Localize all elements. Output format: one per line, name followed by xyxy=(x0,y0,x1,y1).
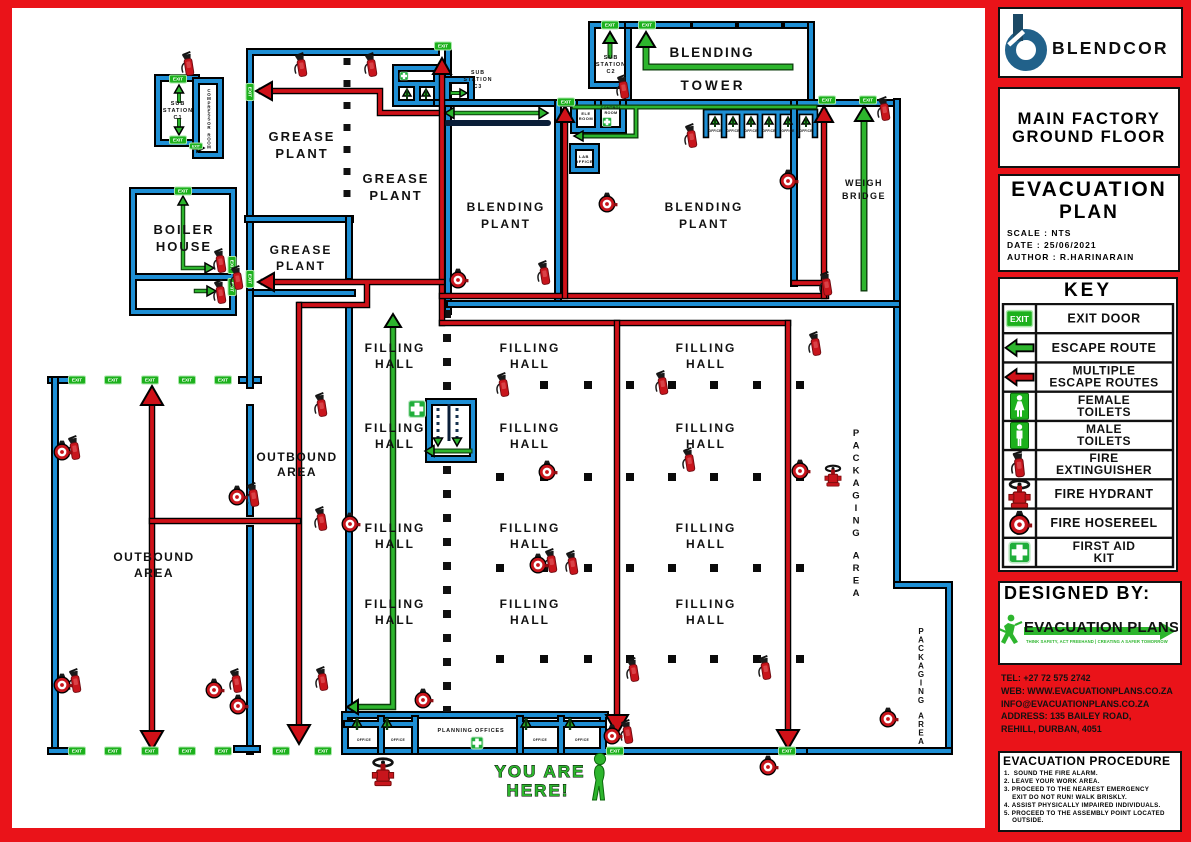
svg-text:EXIT: EXIT xyxy=(108,378,118,383)
svg-text:HALL: HALL xyxy=(686,357,726,371)
svg-text:PLANT: PLANT xyxy=(276,259,326,273)
svg-text:FILLING: FILLING xyxy=(676,597,737,611)
svg-text:EXIT: EXIT xyxy=(182,378,192,383)
svg-text:ROOM: ROOM xyxy=(579,116,594,121)
svg-text:HALL: HALL xyxy=(686,437,726,451)
svg-text:FIRE HOSEREEL: FIRE HOSEREEL xyxy=(1050,516,1157,530)
svg-text:AREA: AREA xyxy=(277,465,317,479)
svg-text:GREASE: GREASE xyxy=(270,243,333,257)
svg-text:CONTROL: CONTROL xyxy=(601,106,622,110)
svg-text:C2: C2 xyxy=(606,69,615,75)
svg-text:EVACUATION PLANS: EVACUATION PLANS xyxy=(1024,619,1178,636)
svg-text:PLANT: PLANT xyxy=(369,188,422,203)
svg-text:HALL: HALL xyxy=(686,613,726,627)
svg-text:BOILER: BOILER xyxy=(153,222,214,237)
svg-text:GREASE: GREASE xyxy=(269,129,336,144)
svg-text:FILLING: FILLING xyxy=(500,521,561,535)
svg-text:GREASE: GREASE xyxy=(363,171,430,186)
svg-text:EXIT DOOR: EXIT DOOR xyxy=(1067,312,1140,326)
svg-text:STATION: STATION xyxy=(464,77,493,83)
svg-text:EXIT: EXIT xyxy=(182,749,192,754)
svg-text:FILLING: FILLING xyxy=(365,341,426,355)
svg-text:BLENDING: BLENDING xyxy=(467,200,546,214)
svg-text:EXIT: EXIT xyxy=(642,23,652,28)
svg-text:PLANT: PLANT xyxy=(481,217,531,231)
svg-text:PLANT: PLANT xyxy=(275,146,328,161)
svg-text:YOU ARE: YOU ARE xyxy=(495,762,586,781)
svg-text:OFFICE: OFFICE xyxy=(357,738,372,742)
svg-text:TOILETS: TOILETS xyxy=(1077,405,1131,419)
svg-text:EXIT: EXIT xyxy=(1010,314,1030,324)
svg-text:EXIT: EXIT xyxy=(782,749,792,754)
svg-text:EXIT: EXIT xyxy=(173,77,183,82)
svg-text:PACKAGINGAREA: PACKAGINGAREA xyxy=(918,627,924,746)
svg-text:OFFICE: OFFICE xyxy=(800,129,813,133)
svg-text:BLENDCOR: BLENDCOR xyxy=(1052,38,1169,58)
svg-text:EXIT: EXIT xyxy=(108,749,118,754)
svg-text:SUB: SUB xyxy=(471,70,485,76)
svg-text:EXIT: EXIT xyxy=(178,189,188,194)
svg-text:HALL: HALL xyxy=(375,437,415,451)
svg-text:FILLING: FILLING xyxy=(500,597,561,611)
svg-text:EXIT: EXIT xyxy=(218,749,228,754)
svg-text:TOWER: TOWER xyxy=(681,78,746,93)
svg-text:HALL: HALL xyxy=(510,613,550,627)
svg-text:HALL: HALL xyxy=(686,537,726,551)
svg-text:EXIT: EXIT xyxy=(561,100,571,105)
svg-text:OFFICE: OFFICE xyxy=(782,129,795,133)
svg-text:WEIGH: WEIGH xyxy=(845,178,883,188)
svg-text:STATION: STATION xyxy=(596,62,626,68)
svg-text:FILLING: FILLING xyxy=(365,521,426,535)
svg-text:HALL: HALL xyxy=(510,437,550,451)
svg-text:EXIT: EXIT xyxy=(438,44,448,49)
svg-text:HALL: HALL xyxy=(510,357,550,371)
svg-text:EXTINGUISHER: EXTINGUISHER xyxy=(1056,463,1152,477)
svg-text:EXIT: EXIT xyxy=(247,274,252,284)
svg-text:THINK SAFETY, ACT FREEHAND | C: THINK SAFETY, ACT FREEHAND | CREATING A … xyxy=(1026,639,1168,644)
svg-text:PACKAGINGAREA: PACKAGINGAREA xyxy=(852,428,860,599)
svg-text:SUB: SUB xyxy=(171,101,186,107)
svg-text:EXIT: EXIT xyxy=(192,144,201,148)
svg-text:HALL: HALL xyxy=(375,357,415,371)
svg-text:EXIT: EXIT xyxy=(863,98,873,103)
svg-text:OFFICE: OFFICE xyxy=(391,738,406,742)
svg-text:FILLING: FILLING xyxy=(365,421,426,435)
svg-text:EXIT: EXIT xyxy=(218,378,228,383)
svg-text:EXIT: EXIT xyxy=(145,378,155,383)
svg-text:HOUSE: HOUSE xyxy=(156,239,212,254)
svg-text:TOILETS: TOILETS xyxy=(1077,434,1131,448)
svg-text:EXIT: EXIT xyxy=(822,98,832,103)
svg-text:BRIDGE: BRIDGE xyxy=(842,191,886,201)
svg-text:EXIT: EXIT xyxy=(173,138,183,143)
svg-text:EXIT: EXIT xyxy=(605,23,615,28)
svg-text:HALL: HALL xyxy=(375,613,415,627)
svg-text:COMPRESSORROOM: COMPRESSORROOM xyxy=(207,88,211,150)
svg-text:AREA: AREA xyxy=(134,566,174,580)
svg-text:C3: C3 xyxy=(474,84,483,90)
svg-text:EXIT: EXIT xyxy=(72,749,82,754)
svg-text:KIT: KIT xyxy=(1094,551,1115,565)
svg-text:HALL: HALL xyxy=(375,537,415,551)
svg-text:OFFICE: OFFICE xyxy=(763,129,776,133)
svg-text:FILLING: FILLING xyxy=(365,597,426,611)
svg-text:OFFICE: OFFICE xyxy=(533,738,548,742)
svg-text:ROOM: ROOM xyxy=(604,111,617,115)
svg-text:OFFICE: OFFICE xyxy=(727,129,740,133)
svg-text:OFFICE: OFFICE xyxy=(575,738,590,742)
svg-text:C1: C1 xyxy=(173,115,182,121)
svg-text:OUTBOUND: OUTBOUND xyxy=(256,450,337,464)
svg-text:OUTBOUND: OUTBOUND xyxy=(113,550,194,564)
svg-text:OFFICE: OFFICE xyxy=(745,129,758,133)
svg-text:ESCAPE ROUTE: ESCAPE ROUTE xyxy=(1052,341,1157,355)
svg-text:PLANT: PLANT xyxy=(679,217,729,231)
svg-text:EXIT: EXIT xyxy=(610,749,620,754)
svg-text:OFFICE: OFFICE xyxy=(709,129,722,133)
svg-text:FILLING: FILLING xyxy=(676,421,737,435)
svg-text:SUB: SUB xyxy=(604,55,619,61)
svg-text:EXIT: EXIT xyxy=(145,749,155,754)
svg-text:ESCAPE ROUTES: ESCAPE ROUTES xyxy=(1049,376,1158,390)
svg-text:PLANNING OFFICES: PLANNING OFFICES xyxy=(438,728,505,734)
svg-text:HALL: HALL xyxy=(510,537,550,551)
svg-text:FILLING: FILLING xyxy=(500,421,561,435)
svg-text:BLENDING: BLENDING xyxy=(670,45,755,60)
svg-text:FILLING: FILLING xyxy=(676,341,737,355)
svg-text:EXIT: EXIT xyxy=(72,378,82,383)
svg-text:FIRE HYDRANT: FIRE HYDRANT xyxy=(1054,487,1153,501)
svg-text:EXIT: EXIT xyxy=(229,282,234,292)
svg-text:FILLING: FILLING xyxy=(676,521,737,535)
svg-text:STATION: STATION xyxy=(163,108,193,114)
svg-text:EXIT: EXIT xyxy=(318,749,328,754)
svg-text:BLENDING: BLENDING xyxy=(665,200,744,214)
svg-text:FILLING: FILLING xyxy=(500,341,561,355)
svg-text:HERE!: HERE! xyxy=(507,781,570,800)
svg-text:OFFICE: OFFICE xyxy=(575,159,593,164)
svg-text:EXIT: EXIT xyxy=(276,749,286,754)
svg-text:EXIT: EXIT xyxy=(247,87,252,97)
